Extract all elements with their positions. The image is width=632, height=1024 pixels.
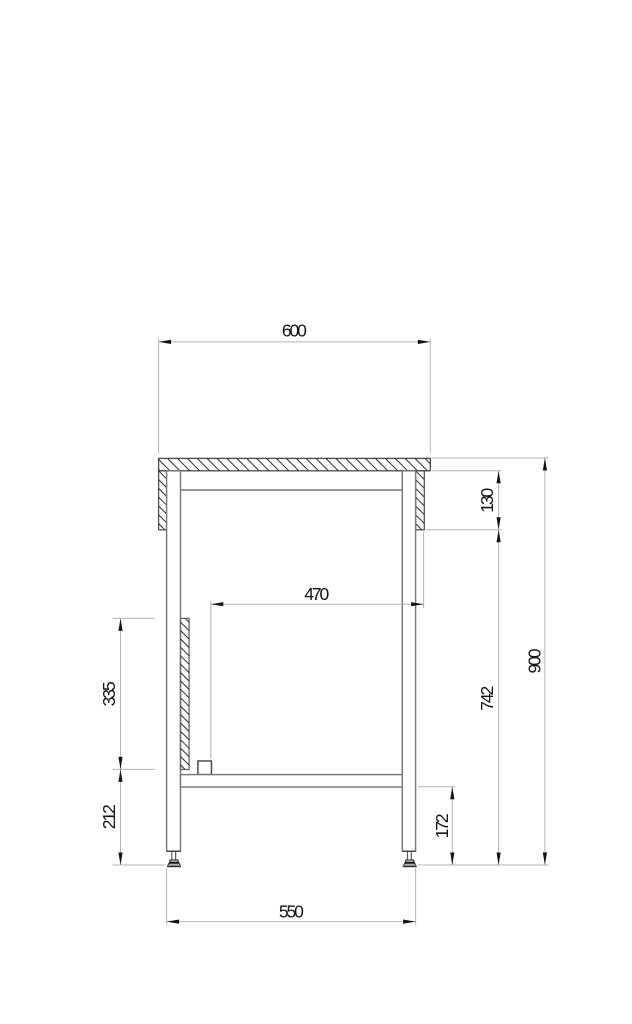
svg-text:600: 600 [282,321,307,341]
svg-text:470: 470 [304,584,329,604]
svg-text:172: 172 [432,813,452,838]
svg-text:742: 742 [477,686,497,711]
svg-text:550: 550 [279,902,304,922]
svg-text:130: 130 [477,488,497,513]
svg-text:212: 212 [99,804,119,829]
svg-text:335: 335 [99,681,119,706]
svg-text:900: 900 [525,648,545,673]
